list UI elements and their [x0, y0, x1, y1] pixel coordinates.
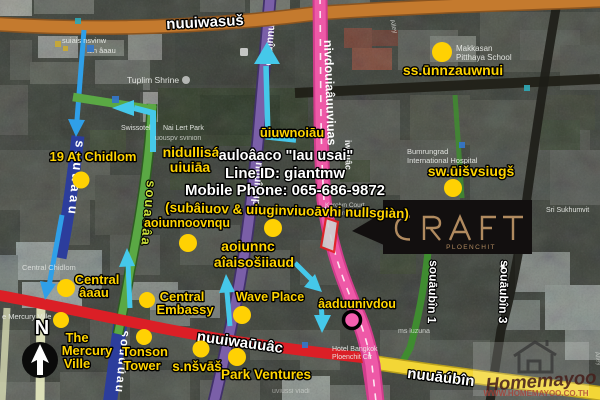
svg-text:Central Chidlom: Central Chidlom: [22, 263, 76, 272]
svg-text:uviussi viadi: uviussi viadi: [272, 388, 310, 395]
svg-text:auloâaco "Iau usai": auloâaco "Iau usai": [219, 148, 354, 164]
svg-text:Sri Sukhumvit: Sri Sukhumvit: [546, 207, 589, 214]
svg-text:Embassy: Embassy: [156, 302, 214, 317]
svg-text:Ville: Ville: [64, 356, 91, 371]
svg-text:aoiunnc: aoiunnc: [221, 238, 275, 254]
svg-text:Pitthaya School: Pitthaya School: [456, 53, 512, 62]
svg-text:PLOENCHIT: PLOENCHIT: [446, 244, 496, 251]
svg-text:Wave Place: Wave Place: [236, 290, 304, 304]
svg-text:ms luzuna: ms luzuna: [398, 328, 430, 335]
svg-text:aîaisošiiaud: aîaisošiiaud: [214, 254, 294, 270]
svg-text:Tower: Tower: [123, 358, 160, 373]
svg-text:Tuplim Shrine: Tuplim Shrine: [127, 75, 179, 85]
svg-text:Ploenchit Ctr: Ploenchit Ctr: [332, 354, 373, 361]
svg-text:souāubîn 1: souāubîn 1: [425, 260, 441, 324]
svg-text:WWW.HOMEMAYOO.CO.TH: WWW.HOMEMAYOO.CO.TH: [483, 389, 588, 398]
svg-text:s.nšvāš: s.nšvāš: [172, 359, 222, 374]
svg-text:uiuiāa: uiuiāa: [170, 159, 211, 175]
svg-text:Park Ventures: Park Ventures: [221, 367, 311, 382]
svg-text:ūiuwnoiāu: ūiuwnoiāu: [260, 125, 324, 140]
svg-text:Hotel Bangkok: Hotel Bangkok: [332, 346, 378, 353]
svg-text:aoiunnoovnqu: aoiunnoovnqu: [144, 216, 230, 230]
svg-text:Mobile Phone: 065-686-9872: Mobile Phone: 065-686-9872: [185, 182, 385, 199]
svg-text:Tonson: Tonson: [122, 344, 168, 359]
svg-text:N: N: [35, 317, 49, 339]
svg-text:♥: ♥: [500, 262, 505, 272]
svg-text:Line ID: giantmw: Line ID: giantmw: [225, 165, 345, 182]
svg-text:âaduunivdou: âaduunivdou: [318, 297, 396, 311]
svg-text:nidullisá: nidullisá: [163, 144, 220, 160]
svg-text:19 At Chidlom: 19 At Chidlom: [50, 149, 137, 164]
svg-text:sw.ūišvsiugš: sw.ūišvsiugš: [428, 163, 515, 179]
svg-text:uouspv svinion: uouspv svinion: [155, 135, 201, 142]
svg-text:Nai Lert Park: Nai Lert Park: [163, 125, 204, 132]
svg-text:Makkasan: Makkasan: [456, 44, 492, 53]
svg-text:âaau: âaau: [79, 285, 109, 300]
svg-text:Swissotel: Swissotel: [121, 125, 151, 132]
svg-text:ss.ūnnzauwnui: ss.ūnnzauwnui: [403, 62, 503, 78]
svg-text:suiais nsvinw: suiais nsvinw: [62, 36, 107, 45]
svg-text:Bumrungrad: Bumrungrad: [407, 147, 448, 156]
